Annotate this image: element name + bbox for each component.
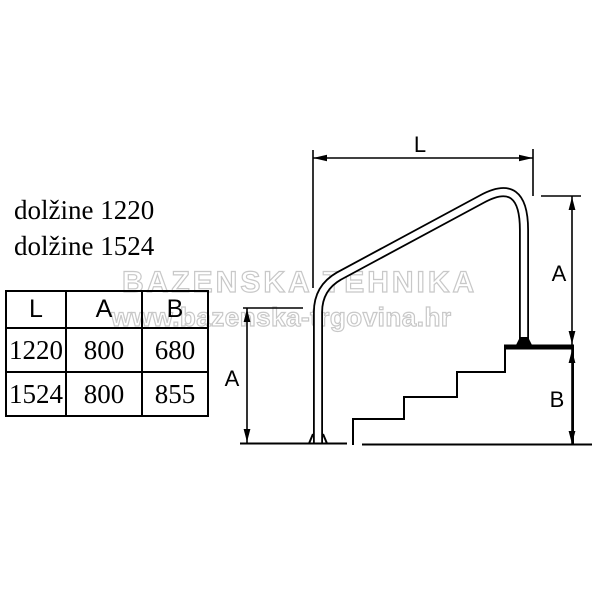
dim-label-deck-height: B [550, 387, 565, 412]
cell-l-1220: 1220 [6, 328, 66, 372]
mounting-plate [504, 345, 574, 350]
cell-b-680: 680 [142, 328, 208, 372]
table-header-a: A [66, 291, 142, 328]
arrowhead-left-icon [313, 155, 327, 161]
dim-label-height-right: A [552, 261, 567, 286]
length-notes: dolžine 1220 dolžine 1524 [14, 197, 154, 269]
length-note-2: dolžine 1524 [14, 233, 154, 260]
cell-a-800: 800 [66, 328, 142, 372]
stairs [240, 345, 592, 445]
arrowhead-down-icon [244, 429, 251, 442]
dimension-table: L A B 1220 800 680 1524 800 855 [5, 290, 209, 417]
table-row: 1524 800 855 [6, 372, 208, 416]
cell-b-855: 855 [142, 372, 208, 416]
cell-l-1524: 1524 [6, 372, 66, 416]
stairs-steps-outline [353, 345, 505, 445]
dimension-height-left [243, 308, 303, 443]
product-dimension-diagram: BAZENSKA TEHNIKA www.bazenska-trgovina.h… [0, 0, 600, 600]
table-row: 1220 800 680 [6, 328, 208, 372]
dim-label-height-left: A [225, 366, 240, 391]
handrail-tube [309, 192, 524, 443]
arrowhead-up-icon [569, 197, 576, 210]
dim-label-length: L [414, 132, 426, 157]
arrowhead-down-icon [569, 331, 576, 344]
table-header-l: L [6, 291, 66, 328]
base-flare-left [309, 434, 313, 444]
cell-a-800: 800 [66, 372, 142, 416]
base-flare-right [323, 434, 327, 444]
arrowhead-up-icon [244, 309, 251, 322]
arrowhead-right-icon [519, 155, 533, 161]
table-header-row: L A B [6, 291, 208, 328]
length-note-1: dolžine 1220 [14, 197, 154, 224]
mounting-flange [516, 337, 532, 345]
handrail-inner [318, 192, 524, 443]
table-header-b: B [142, 291, 208, 328]
